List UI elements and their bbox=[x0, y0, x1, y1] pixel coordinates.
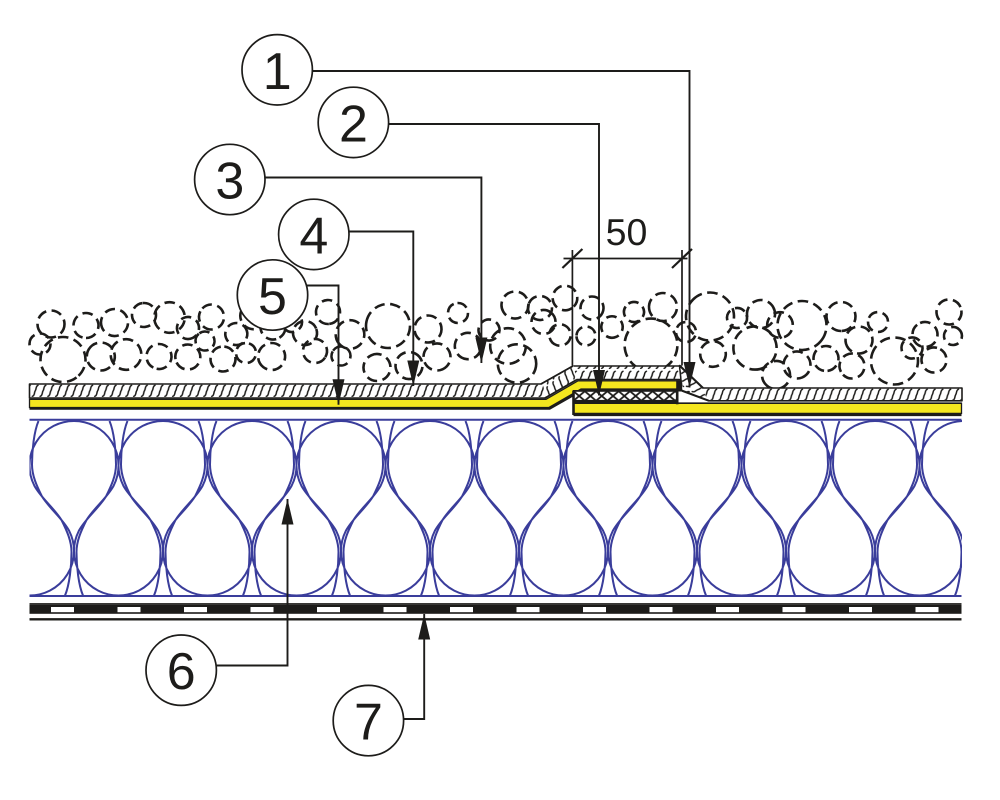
svg-text:5: 5 bbox=[258, 268, 287, 326]
svg-text:6: 6 bbox=[167, 643, 196, 701]
svg-text:3: 3 bbox=[215, 153, 244, 211]
svg-text:7: 7 bbox=[354, 694, 383, 752]
svg-text:1: 1 bbox=[263, 43, 292, 101]
svg-text:50: 50 bbox=[606, 211, 648, 253]
svg-text:4: 4 bbox=[299, 207, 328, 265]
svg-text:2: 2 bbox=[339, 95, 368, 153]
